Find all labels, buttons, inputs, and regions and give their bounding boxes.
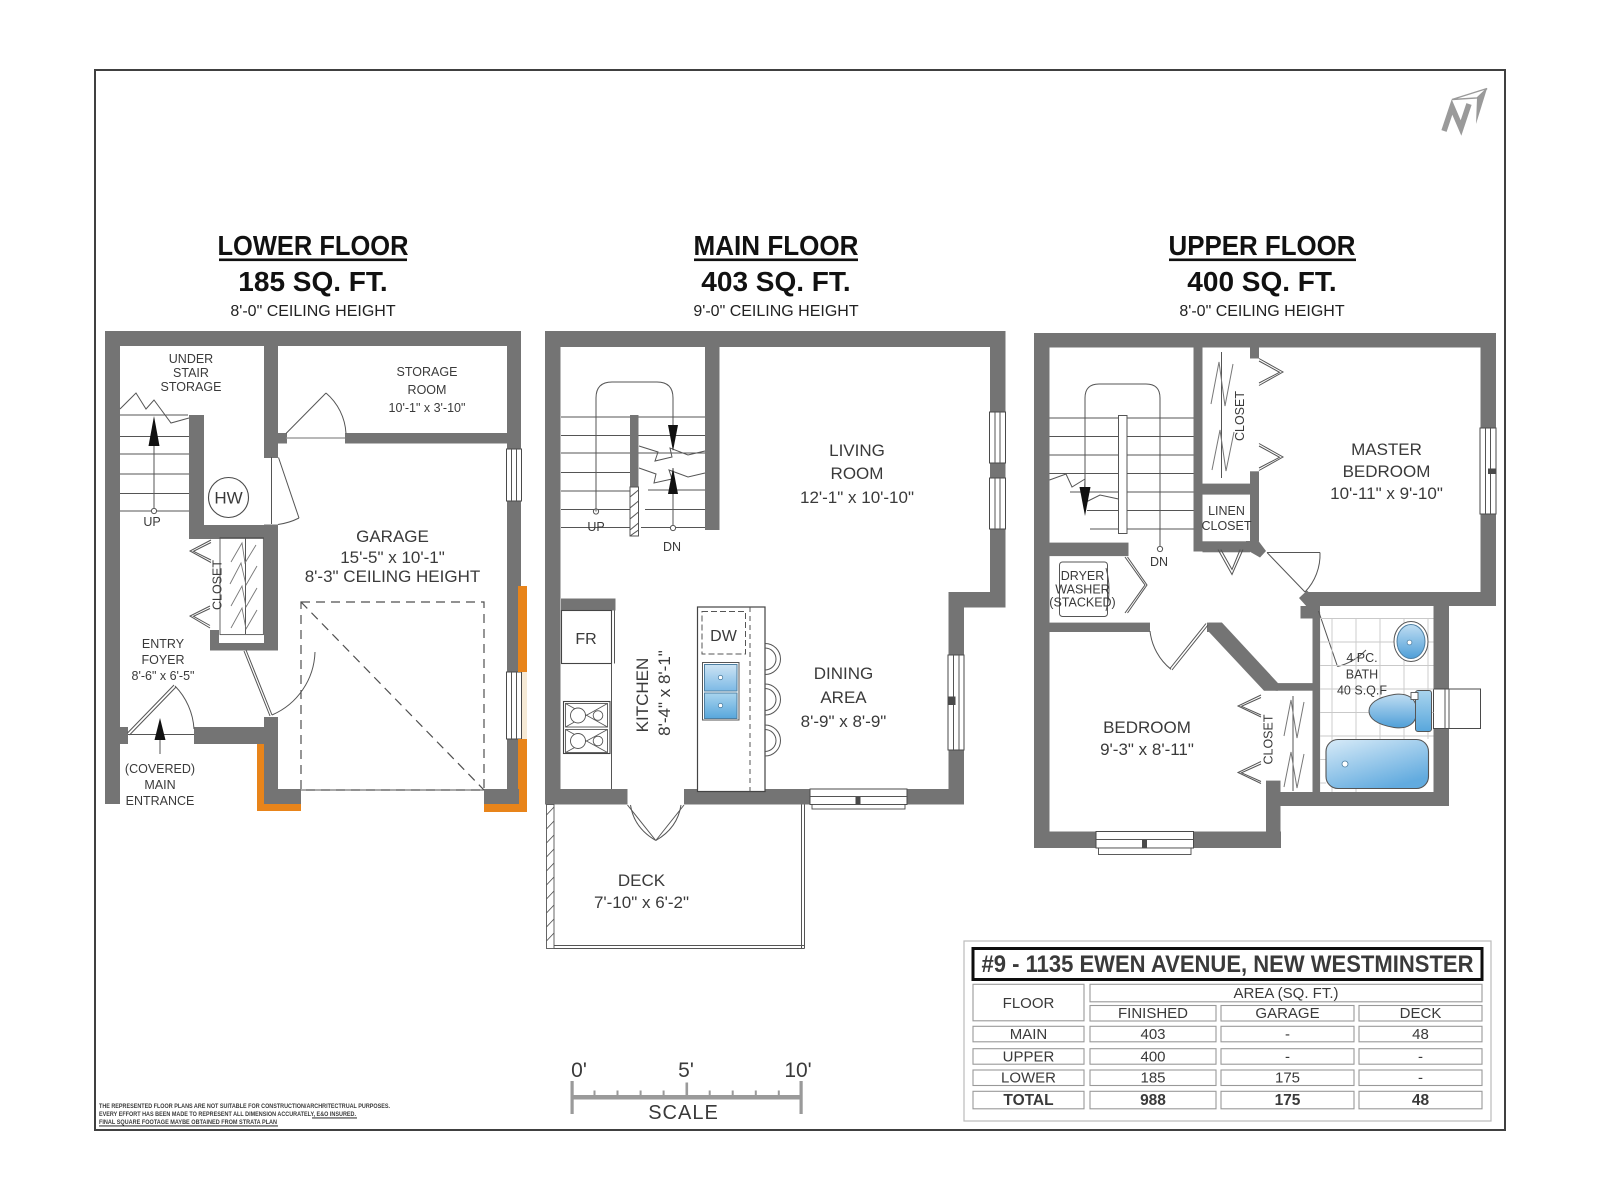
svg-text:UP: UP xyxy=(143,515,160,529)
svg-text:UPPER FLOOR: UPPER FLOOR xyxy=(1169,230,1356,261)
svg-text:175: 175 xyxy=(1275,1070,1300,1087)
svg-text:48: 48 xyxy=(1412,1092,1430,1109)
svg-text:LOWER: LOWER xyxy=(1001,1070,1056,1087)
svg-text:DN: DN xyxy=(1150,555,1168,569)
svg-text:9'-3" x 8'-11": 9'-3" x 8'-11" xyxy=(1100,740,1194,759)
svg-text:DECK: DECK xyxy=(618,871,666,890)
svg-text:15'-5" x 10'-1": 15'-5" x 10'-1" xyxy=(340,548,445,567)
svg-text:DW: DW xyxy=(710,628,738,645)
svg-text:CLOSET: CLOSET xyxy=(1233,391,1247,441)
svg-text:(STACKED): (STACKED) xyxy=(1049,596,1115,610)
svg-text:-: - xyxy=(1418,1048,1423,1065)
svg-text:0': 0' xyxy=(571,1059,587,1082)
svg-text:AREA (SQ. FT.): AREA (SQ. FT.) xyxy=(1233,985,1338,1002)
svg-text:7'-10" x 6'-2": 7'-10" x 6'-2" xyxy=(594,893,689,912)
svg-text:UPPER: UPPER xyxy=(1003,1048,1055,1065)
svg-text:DRYER: DRYER xyxy=(1061,569,1105,583)
svg-text:STORAGE: STORAGE xyxy=(161,380,222,394)
svg-text:-: - xyxy=(1418,1070,1423,1087)
svg-text:5': 5' xyxy=(678,1059,694,1082)
svg-text:DN: DN xyxy=(663,540,681,554)
svg-text:FINAL SQUARE FOOTAGE MAYBE OBT: FINAL SQUARE FOOTAGE MAYBE OBTAINED FROM… xyxy=(99,1119,277,1126)
svg-text:DECK: DECK xyxy=(1400,1005,1442,1022)
svg-text:10'-11" x 9'-10": 10'-11" x 9'-10" xyxy=(1330,484,1443,503)
svg-text:CLOSET: CLOSET xyxy=(1262,714,1276,764)
svg-text:FINISHED: FINISHED xyxy=(1118,1005,1188,1022)
svg-text:BEDROOM: BEDROOM xyxy=(1343,462,1431,481)
svg-text:KITCHEN: KITCHEN xyxy=(633,658,652,733)
svg-text:175: 175 xyxy=(1275,1092,1301,1109)
svg-text:CLOSET: CLOSET xyxy=(211,560,225,610)
svg-text:BATH: BATH xyxy=(1346,668,1378,682)
svg-text:EVERY EFFORT HAS BEEN MADE TO: EVERY EFFORT HAS BEEN MADE TO REPRESENT … xyxy=(99,1111,356,1118)
svg-text:FOYER: FOYER xyxy=(141,653,184,667)
svg-text:10'-1" x 3'-10": 10'-1" x 3'-10" xyxy=(389,401,466,415)
svg-text:ENTRANCE: ENTRANCE xyxy=(126,794,195,808)
svg-text:FLOOR: FLOOR xyxy=(1003,995,1055,1012)
svg-text:8'-0" CEILING HEIGHT: 8'-0" CEILING HEIGHT xyxy=(1179,303,1344,320)
svg-text:48: 48 xyxy=(1412,1026,1429,1043)
svg-text:8'-4" x 8'-1": 8'-4" x 8'-1" xyxy=(655,650,674,736)
svg-text:#9 - 1135 EWEN AVENUE, NEW WES: #9 - 1135 EWEN AVENUE, NEW WESTMINSTER xyxy=(982,951,1474,978)
svg-text:ENTRY: ENTRY xyxy=(142,637,185,651)
svg-text:THE REPRESENTED FLOOR PLANS AR: THE REPRESENTED FLOOR PLANS ARE NOT SUIT… xyxy=(99,1103,390,1110)
svg-text:8'-3" CEILING HEIGHT: 8'-3" CEILING HEIGHT xyxy=(305,567,481,586)
svg-text:185 SQ. FT.: 185 SQ. FT. xyxy=(238,266,387,297)
svg-text:CLOSET: CLOSET xyxy=(1201,519,1251,533)
svg-text:8'-9" x 8'-9": 8'-9" x 8'-9" xyxy=(801,712,887,731)
svg-text:LOWER FLOOR: LOWER FLOOR xyxy=(218,230,409,261)
svg-text:4 PC.: 4 PC. xyxy=(1346,651,1377,665)
svg-text:9'-0" CEILING HEIGHT: 9'-0" CEILING HEIGHT xyxy=(693,303,858,320)
svg-text:UNDER: UNDER xyxy=(169,352,213,366)
svg-text:HW: HW xyxy=(214,489,242,508)
svg-text:ROOM: ROOM xyxy=(831,464,884,483)
svg-text:185: 185 xyxy=(1140,1070,1165,1087)
svg-text:STAIR: STAIR xyxy=(173,366,209,380)
svg-text:LIVING: LIVING xyxy=(829,441,885,460)
svg-text:403: 403 xyxy=(1140,1026,1165,1043)
svg-text:ROOM: ROOM xyxy=(408,383,447,397)
svg-text:LINEN: LINEN xyxy=(1208,504,1245,518)
svg-text:12'-1" x 10'-10": 12'-1" x 10'-10" xyxy=(800,488,914,507)
svg-text:400 SQ. FT.: 400 SQ. FT. xyxy=(1187,266,1336,297)
svg-text:988: 988 xyxy=(1140,1092,1166,1109)
svg-text:-: - xyxy=(1285,1026,1290,1043)
svg-text:8'-6" x 6'-5": 8'-6" x 6'-5" xyxy=(132,669,195,683)
svg-text:GARAGE: GARAGE xyxy=(1255,1005,1319,1022)
svg-text:WASHER: WASHER xyxy=(1055,583,1109,597)
svg-text:STORAGE: STORAGE xyxy=(397,365,458,379)
svg-text:(COVERED): (COVERED) xyxy=(125,762,195,776)
svg-text:403 SQ. FT.: 403 SQ. FT. xyxy=(701,266,850,297)
svg-text:MAIN: MAIN xyxy=(1010,1026,1048,1043)
svg-text:MASTER: MASTER xyxy=(1351,440,1422,459)
svg-text:8'-0" CEILING HEIGHT: 8'-0" CEILING HEIGHT xyxy=(230,303,395,320)
svg-text:40 S.Q.F: 40 S.Q.F xyxy=(1337,684,1387,698)
svg-text:SCALE: SCALE xyxy=(648,1102,719,1124)
svg-text:AREA: AREA xyxy=(820,688,867,707)
svg-text:TOTAL: TOTAL xyxy=(1003,1092,1053,1109)
svg-text:GARAGE: GARAGE xyxy=(356,527,429,546)
svg-text:MAIN FLOOR: MAIN FLOOR xyxy=(694,230,859,261)
svg-text:BEDROOM: BEDROOM xyxy=(1103,718,1191,737)
svg-text:UP: UP xyxy=(587,520,604,534)
svg-text:-: - xyxy=(1285,1048,1290,1065)
svg-text:MAIN: MAIN xyxy=(144,778,175,792)
svg-text:FR: FR xyxy=(575,631,596,648)
svg-text:10': 10' xyxy=(784,1059,811,1082)
svg-text:400: 400 xyxy=(1140,1048,1165,1065)
svg-text:DINING: DINING xyxy=(814,664,874,683)
